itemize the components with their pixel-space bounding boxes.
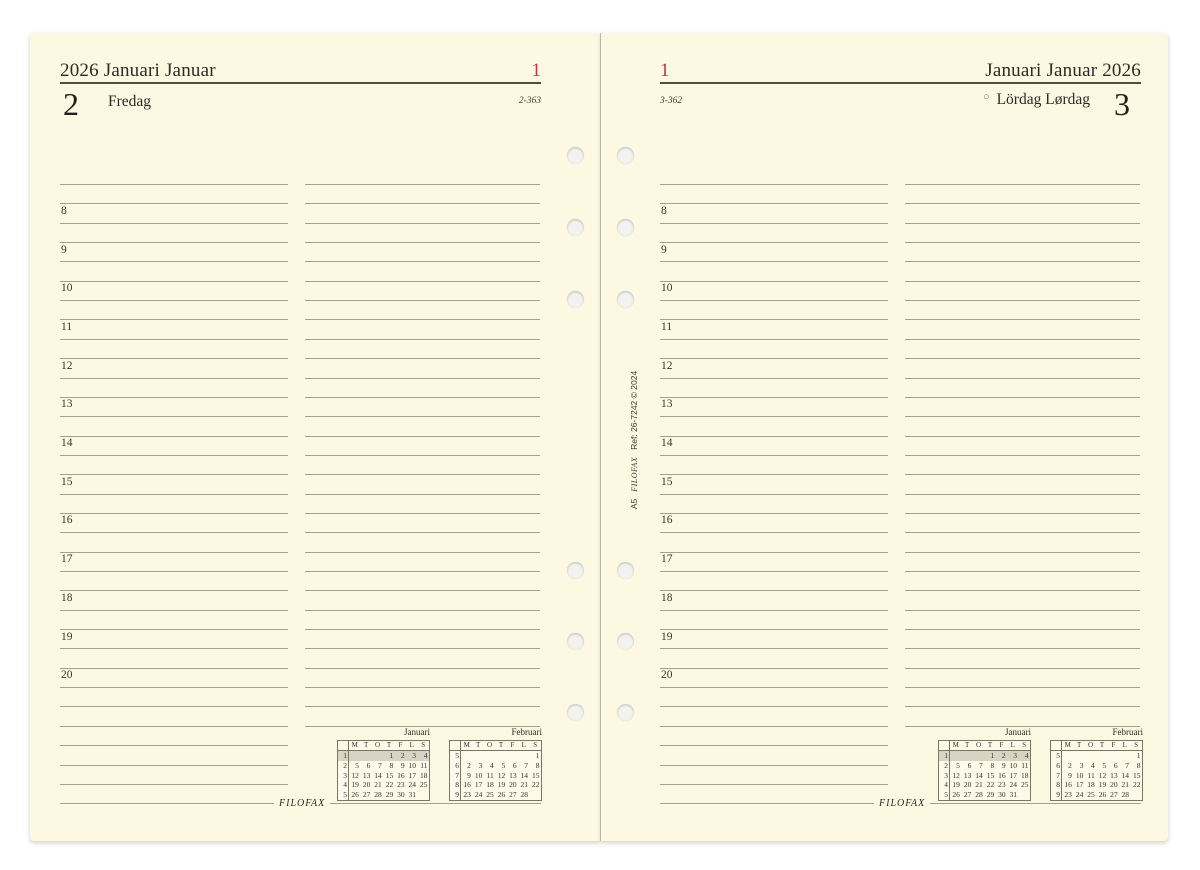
day-header-cell: F bbox=[996, 741, 1007, 750]
hour-label: 9 bbox=[661, 245, 667, 257]
week-number-cell: 9 bbox=[1051, 790, 1062, 800]
week-number-cell: 2 bbox=[338, 761, 349, 771]
week-number-cell: 9 bbox=[450, 790, 461, 800]
ruled-line bbox=[905, 668, 1140, 669]
week-number-cell: 5 bbox=[1051, 751, 1062, 761]
calendar-week-row: 9232425262728 bbox=[450, 790, 541, 800]
binder-hole bbox=[567, 219, 584, 236]
day-cell: 9 bbox=[461, 771, 472, 781]
week-number-cell: 5 bbox=[939, 790, 950, 800]
day-header-cell: L bbox=[406, 741, 417, 750]
calendar-week-row: 816171819202122 bbox=[1051, 780, 1142, 790]
mini-calendar-februari: FebruariMTOTFLS5162345678791011121314158… bbox=[449, 727, 542, 801]
left-day-of-year: 2-363 bbox=[60, 97, 541, 107]
day-cell: 17 bbox=[1007, 771, 1018, 781]
week-number-cell: 4 bbox=[939, 780, 950, 790]
week-number-cell: 4 bbox=[338, 780, 349, 790]
calendar-week-row: 2567891011 bbox=[939, 761, 1030, 771]
day-cell: 13 bbox=[360, 771, 371, 781]
ruled-line bbox=[660, 300, 888, 301]
ruled-line bbox=[305, 378, 540, 379]
day-cell: 12 bbox=[349, 771, 360, 781]
ruled-line bbox=[305, 261, 540, 262]
day-cell: 18 bbox=[1019, 771, 1030, 781]
week-number-cell: 3 bbox=[338, 771, 349, 781]
day-cell: 13 bbox=[507, 771, 518, 781]
day-cell: 4 bbox=[1085, 761, 1096, 771]
binder-hole bbox=[617, 562, 634, 579]
calendar-week-row: 312131415161718 bbox=[338, 771, 429, 781]
hour-label: 15 bbox=[61, 477, 73, 489]
diary-spread: 2026 Januari Januar 1 2 Fredag 2-363 fil… bbox=[0, 0, 1200, 870]
ruled-line bbox=[60, 687, 288, 688]
rule-segment bbox=[660, 803, 874, 804]
ruled-line bbox=[60, 378, 288, 379]
hour-label: 16 bbox=[61, 515, 73, 527]
ruled-line bbox=[305, 203, 540, 204]
hour-label: 9 bbox=[61, 245, 67, 257]
ruled-line bbox=[905, 261, 1140, 262]
day-cell: 26 bbox=[950, 790, 961, 800]
day-cell: 12 bbox=[950, 771, 961, 781]
binder-hole bbox=[567, 562, 584, 579]
day-cell: 24 bbox=[472, 790, 483, 800]
day-cell: 23 bbox=[1062, 790, 1073, 800]
filofax-logo: filofax bbox=[879, 795, 925, 810]
day-cell: 5 bbox=[349, 761, 360, 771]
day-cell: 8 bbox=[984, 761, 995, 771]
calendar-week-row: 62345678 bbox=[1051, 761, 1142, 771]
spine-size-label: A5 bbox=[629, 499, 639, 509]
mini-calendar-header-row: MTOTFLS bbox=[450, 741, 541, 751]
day-cell bbox=[484, 751, 495, 761]
day-cell bbox=[1108, 751, 1119, 761]
day-cell: 5 bbox=[1096, 761, 1107, 771]
day-cell bbox=[1096, 751, 1107, 761]
week-number-cell: 6 bbox=[1051, 761, 1062, 771]
day-cell bbox=[950, 751, 961, 761]
mini-calendar-grid: MTOTFLS112342567891011312131415161718419… bbox=[938, 740, 1031, 801]
day-cell: 26 bbox=[495, 790, 506, 800]
day-header-cell: T bbox=[383, 741, 394, 750]
calendar-week-row: 5262728293031 bbox=[939, 790, 1030, 800]
day-cell bbox=[495, 751, 506, 761]
calendar-week-row: 419202122232425 bbox=[338, 780, 429, 790]
mini-calendar-grid: MTOTFLS112342567891011312131415161718419… bbox=[337, 740, 430, 801]
day-cell: 30 bbox=[996, 790, 1007, 800]
week-number-cell: 5 bbox=[338, 790, 349, 800]
ruled-line bbox=[660, 590, 888, 591]
ruled-line bbox=[660, 203, 888, 204]
ruled-line bbox=[305, 648, 540, 649]
mini-calendar-title: Januari bbox=[337, 727, 430, 740]
ruled-line bbox=[60, 648, 288, 649]
ruled-line bbox=[60, 494, 288, 495]
mini-calendar-grid: MTOTFLS516234567879101112131415816171819… bbox=[1050, 740, 1143, 801]
day-cell: 9 bbox=[1062, 771, 1073, 781]
day-cell: 31 bbox=[406, 790, 417, 800]
day-cell: 12 bbox=[1096, 771, 1107, 781]
calendar-week-row: 9232425262728 bbox=[1051, 790, 1142, 800]
day-cell: 31 bbox=[1007, 790, 1018, 800]
day-cell: 16 bbox=[996, 771, 1007, 781]
ruled-line bbox=[660, 629, 888, 630]
day-cell bbox=[507, 751, 518, 761]
day-cell: 15 bbox=[383, 771, 394, 781]
day-cell bbox=[1073, 751, 1084, 761]
calendar-week-row: 2567891011 bbox=[338, 761, 429, 771]
day-cell: 16 bbox=[461, 780, 472, 790]
mini-calendar-header-row: MTOTFLS bbox=[338, 741, 429, 751]
ruled-line bbox=[60, 610, 288, 611]
ruled-line bbox=[660, 436, 888, 437]
day-header-cell: M bbox=[461, 741, 472, 750]
mini-calendar-header-row: MTOTFLS bbox=[1051, 741, 1142, 751]
day-header-cell: S bbox=[530, 741, 541, 750]
mini-calendar-grid: MTOTFLS516234567879101112131415816171819… bbox=[449, 740, 542, 801]
hour-label: 18 bbox=[61, 593, 73, 605]
ruled-line bbox=[305, 610, 540, 611]
day-cell: 11 bbox=[1019, 761, 1030, 771]
week-number-cell: 1 bbox=[338, 751, 349, 761]
day-cell: 22 bbox=[1131, 780, 1142, 790]
day-header-cell: T bbox=[961, 741, 972, 750]
mini-calendar-title: Februari bbox=[449, 727, 542, 740]
day-cell: 19 bbox=[950, 780, 961, 790]
ruled-line bbox=[905, 358, 1140, 359]
day-cell: 27 bbox=[1108, 790, 1119, 800]
day-cell: 20 bbox=[360, 780, 371, 790]
day-cell bbox=[461, 751, 472, 761]
ruled-line bbox=[60, 319, 288, 320]
ruled-line bbox=[60, 706, 288, 707]
day-cell: 10 bbox=[472, 771, 483, 781]
calendar-week-row: 312131415161718 bbox=[939, 771, 1030, 781]
calendar-week-row: 51 bbox=[1051, 751, 1142, 761]
ruled-line bbox=[905, 610, 1140, 611]
day-cell bbox=[360, 751, 371, 761]
day-header-cell: S bbox=[1131, 741, 1142, 750]
ruled-line bbox=[60, 184, 288, 185]
day-header-cell: M bbox=[349, 741, 360, 750]
day-cell: 25 bbox=[484, 790, 495, 800]
hour-label: 13 bbox=[61, 399, 73, 411]
ruled-line bbox=[305, 706, 540, 707]
day-cell: 1 bbox=[984, 751, 995, 761]
day-cell: 28 bbox=[518, 790, 529, 800]
ruled-line bbox=[660, 668, 888, 669]
day-cell: 24 bbox=[1073, 790, 1084, 800]
day-cell: 21 bbox=[1119, 780, 1130, 790]
ruled-line bbox=[660, 610, 888, 611]
calendar-week-row: 419202122232425 bbox=[939, 780, 1030, 790]
calendar-week-row: 79101112131415 bbox=[1051, 771, 1142, 781]
ruled-line bbox=[60, 745, 288, 746]
ruled-line bbox=[305, 494, 540, 495]
ruled-line bbox=[660, 726, 888, 727]
day-header-cell: T bbox=[472, 741, 483, 750]
ruled-line bbox=[905, 552, 1140, 553]
day-header-cell: O bbox=[372, 741, 383, 750]
ruled-line bbox=[660, 242, 888, 243]
day-cell: 19 bbox=[349, 780, 360, 790]
day-header-cell: M bbox=[1062, 741, 1073, 750]
day-cell bbox=[472, 751, 483, 761]
day-cell: 18 bbox=[418, 771, 429, 781]
day-cell: 27 bbox=[961, 790, 972, 800]
ruled-line bbox=[60, 339, 288, 340]
ruled-line bbox=[305, 300, 540, 301]
day-cell: 20 bbox=[961, 780, 972, 790]
ruled-line bbox=[905, 513, 1140, 514]
ruled-line bbox=[905, 474, 1140, 475]
ruled-line bbox=[660, 513, 888, 514]
day-cell: 14 bbox=[372, 771, 383, 781]
day-cell bbox=[349, 751, 360, 761]
ruled-line bbox=[660, 552, 888, 553]
day-cell: 6 bbox=[961, 761, 972, 771]
ruled-line bbox=[660, 416, 888, 417]
right-day-name: Lördag Lørdag bbox=[997, 92, 1090, 108]
day-cell: 3 bbox=[472, 761, 483, 771]
day-cell: 10 bbox=[406, 761, 417, 771]
day-cell: 12 bbox=[495, 771, 506, 781]
spine-brand-logo: filofax bbox=[628, 457, 640, 492]
day-cell: 9 bbox=[996, 761, 1007, 771]
calendar-week-row: 816171819202122 bbox=[450, 780, 541, 790]
day-cell: 6 bbox=[360, 761, 371, 771]
spine-imprint: A5 filofax Ref: 26-7242 © 2024 bbox=[628, 371, 640, 509]
right-page: 1 Januari Januar 2026 3-362 ○ Lördag Lør… bbox=[601, 33, 1168, 841]
day-cell: 19 bbox=[495, 780, 506, 790]
day-header-cell: T bbox=[495, 741, 506, 750]
day-header-cell: O bbox=[484, 741, 495, 750]
hour-label: 14 bbox=[661, 438, 673, 450]
ruled-line bbox=[660, 784, 888, 785]
day-cell bbox=[530, 790, 541, 800]
day-cell bbox=[1131, 790, 1142, 800]
ruled-line bbox=[60, 358, 288, 359]
day-cell bbox=[961, 751, 972, 761]
day-cell: 5 bbox=[495, 761, 506, 771]
ruled-line bbox=[60, 784, 288, 785]
day-cell: 18 bbox=[1085, 780, 1096, 790]
day-cell: 26 bbox=[1096, 790, 1107, 800]
ruled-line bbox=[60, 242, 288, 243]
hour-label: 10 bbox=[61, 283, 73, 295]
day-cell: 28 bbox=[1119, 790, 1130, 800]
ruled-line bbox=[905, 571, 1140, 572]
hour-label: 20 bbox=[61, 670, 73, 682]
ruled-line bbox=[305, 474, 540, 475]
right-week-number: 1 bbox=[660, 61, 670, 82]
day-cell bbox=[1119, 751, 1130, 761]
day-cell: 14 bbox=[518, 771, 529, 781]
day-header-cell: M bbox=[950, 741, 961, 750]
day-cell: 25 bbox=[1019, 780, 1030, 790]
day-cell: 22 bbox=[383, 780, 394, 790]
day-cell: 27 bbox=[360, 790, 371, 800]
ruled-line bbox=[905, 706, 1140, 707]
week-number-cell: 7 bbox=[450, 771, 461, 781]
ruled-line bbox=[660, 765, 888, 766]
day-header-cell: S bbox=[1019, 741, 1030, 750]
day-cell: 7 bbox=[372, 761, 383, 771]
week-number-cell: 1 bbox=[939, 751, 950, 761]
binder-hole bbox=[567, 704, 584, 721]
day-cell: 23 bbox=[395, 780, 406, 790]
mini-calendar-header-row: MTOTFLS bbox=[939, 741, 1030, 751]
day-cell: 15 bbox=[1131, 771, 1142, 781]
hour-label: 8 bbox=[661, 206, 667, 218]
hour-label: 18 bbox=[661, 593, 673, 605]
ruled-line bbox=[305, 416, 540, 417]
day-cell: 7 bbox=[973, 761, 984, 771]
ruled-line bbox=[660, 397, 888, 398]
day-cell: 21 bbox=[372, 780, 383, 790]
day-cell: 21 bbox=[518, 780, 529, 790]
week-number-column bbox=[939, 741, 950, 750]
day-cell: 29 bbox=[383, 790, 394, 800]
day-cell: 19 bbox=[1096, 780, 1107, 790]
day-cell: 22 bbox=[530, 780, 541, 790]
right-header-title: Januari Januar 2026 bbox=[985, 61, 1141, 82]
left-header-title: 2026 Januari Januar bbox=[60, 61, 216, 82]
right-day-row: ○ Lördag Lørdag 3 bbox=[660, 88, 1130, 120]
calendar-week-row: 79101112131415 bbox=[450, 771, 541, 781]
ruled-line bbox=[660, 358, 888, 359]
rule-segment bbox=[330, 803, 541, 804]
ruled-line bbox=[305, 687, 540, 688]
ruled-line bbox=[305, 281, 540, 282]
ruled-line bbox=[305, 184, 540, 185]
rule-segment bbox=[60, 803, 274, 804]
week-number-column bbox=[338, 741, 349, 750]
ruled-line bbox=[60, 416, 288, 417]
ruled-line bbox=[905, 532, 1140, 533]
binder-hole bbox=[617, 219, 634, 236]
ruled-line bbox=[660, 339, 888, 340]
day-cell: 7 bbox=[518, 761, 529, 771]
day-cell: 6 bbox=[1108, 761, 1119, 771]
hour-label: 19 bbox=[61, 632, 73, 644]
day-header-cell: O bbox=[973, 741, 984, 750]
hour-label: 14 bbox=[61, 438, 73, 450]
hour-label: 15 bbox=[661, 477, 673, 489]
binder-hole bbox=[567, 633, 584, 650]
day-cell: 3 bbox=[406, 751, 417, 761]
ruled-line bbox=[905, 281, 1140, 282]
day-cell: 22 bbox=[984, 780, 995, 790]
ruled-line bbox=[660, 378, 888, 379]
ruled-line bbox=[905, 648, 1140, 649]
day-cell: 25 bbox=[418, 780, 429, 790]
ruled-line bbox=[60, 300, 288, 301]
day-cell: 20 bbox=[1108, 780, 1119, 790]
ruled-line bbox=[305, 358, 540, 359]
day-cell: 14 bbox=[973, 771, 984, 781]
ruled-line bbox=[905, 223, 1140, 224]
day-cell: 8 bbox=[383, 761, 394, 771]
hour-label: 11 bbox=[61, 322, 72, 334]
hour-label: 11 bbox=[661, 322, 672, 334]
day-cell: 13 bbox=[961, 771, 972, 781]
ruled-line bbox=[60, 765, 288, 766]
left-page: 2026 Januari Januar 1 2 Fredag 2-363 fil… bbox=[30, 33, 600, 841]
ruled-line bbox=[305, 319, 540, 320]
day-cell bbox=[418, 790, 429, 800]
ruled-line bbox=[905, 629, 1140, 630]
ruled-line bbox=[60, 223, 288, 224]
day-cell: 27 bbox=[507, 790, 518, 800]
ruled-line bbox=[660, 455, 888, 456]
ruled-line bbox=[60, 629, 288, 630]
day-cell: 1 bbox=[383, 751, 394, 761]
week-number-cell: 5 bbox=[450, 751, 461, 761]
day-cell: 29 bbox=[984, 790, 995, 800]
binder-hole bbox=[567, 291, 584, 308]
day-cell bbox=[973, 751, 984, 761]
day-header-cell: L bbox=[1119, 741, 1130, 750]
moon-phase-icon: ○ bbox=[983, 92, 990, 103]
week-number-cell: 2 bbox=[939, 761, 950, 771]
ruled-line bbox=[905, 416, 1140, 417]
calendar-week-row: 11234 bbox=[939, 751, 1030, 761]
ruled-line bbox=[660, 571, 888, 572]
day-cell: 26 bbox=[349, 790, 360, 800]
ruled-line bbox=[905, 436, 1140, 437]
ruled-line bbox=[905, 242, 1140, 243]
ruled-line bbox=[305, 668, 540, 669]
day-cell: 7 bbox=[1119, 761, 1130, 771]
day-cell: 10 bbox=[1007, 761, 1018, 771]
day-header-cell: F bbox=[395, 741, 406, 750]
week-number-cell: 3 bbox=[939, 771, 950, 781]
calendar-week-row: 51 bbox=[450, 751, 541, 761]
hour-label: 12 bbox=[61, 361, 73, 373]
day-cell bbox=[518, 751, 529, 761]
ruled-line bbox=[305, 455, 540, 456]
ruled-line bbox=[660, 687, 888, 688]
ruled-line bbox=[905, 397, 1140, 398]
mini-calendar-title: Januari bbox=[938, 727, 1031, 740]
week-number-column bbox=[450, 741, 461, 750]
ruled-line bbox=[305, 571, 540, 572]
ruled-line bbox=[60, 474, 288, 475]
binder-hole bbox=[617, 147, 634, 164]
day-header-cell: F bbox=[1108, 741, 1119, 750]
day-header-cell: L bbox=[1007, 741, 1018, 750]
hour-label: 10 bbox=[661, 283, 673, 295]
calendar-week-row: 5262728293031 bbox=[338, 790, 429, 800]
hour-label: 8 bbox=[61, 206, 67, 218]
day-cell: 11 bbox=[484, 771, 495, 781]
day-cell: 6 bbox=[507, 761, 518, 771]
day-cell: 30 bbox=[395, 790, 406, 800]
ruled-line bbox=[660, 184, 888, 185]
ruled-line bbox=[305, 590, 540, 591]
ruled-line bbox=[660, 261, 888, 262]
hour-label: 16 bbox=[661, 515, 673, 527]
day-cell bbox=[1085, 751, 1096, 761]
ruled-line bbox=[660, 494, 888, 495]
ruled-line bbox=[660, 474, 888, 475]
day-header-cell: T bbox=[1096, 741, 1107, 750]
ruled-line bbox=[305, 513, 540, 514]
binder-hole bbox=[617, 704, 634, 721]
hour-label: 17 bbox=[61, 554, 73, 566]
ruled-line bbox=[60, 532, 288, 533]
